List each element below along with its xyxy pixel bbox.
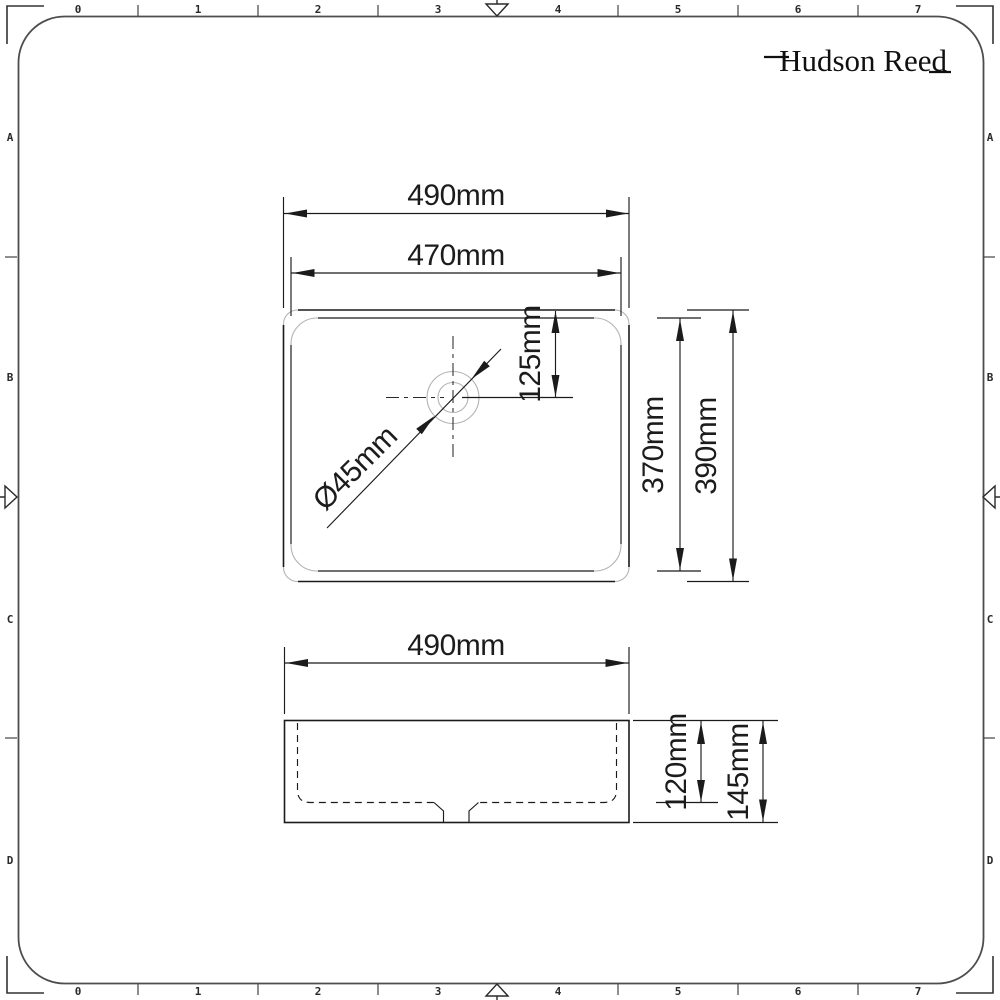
basin-front-view: 490mm 120mm 145mm [285,629,779,823]
brand-name: Hudson Reed [779,43,947,78]
ruler-label: A [7,131,14,144]
border-rounded-rect [19,17,984,984]
basin-front-outline [285,721,630,823]
hidden-bowl-contour-right [478,723,617,803]
ruler-label: B [7,371,14,384]
dim-plan-drain-diameter: Ø45mm [307,349,501,528]
ruler-label: 3 [435,3,442,16]
technical-drawing-sheet: 0 1 2 3 4 5 6 7 0 1 2 3 4 5 6 7 A B C D … [0,0,1000,1000]
dim-front-outer-height: 145mm [722,721,767,823]
dim-plan-inner-width: 470mm [291,239,621,316]
dim-front-outer-width: 490mm [285,629,630,714]
ruler-label: D [7,854,14,867]
dim-plan-drain-offset: 125mm [514,305,560,403]
ruler-label: 2 [315,985,322,998]
basin-plan-view: Ø45mm 490mm 470mm 125mm [284,179,750,582]
ruler-label: 3 [435,985,442,998]
ruler-label: A [987,131,994,144]
center-mark-right [983,486,1000,508]
dim-label-inner-height: 120mm [660,713,693,811]
drawing-canvas: 0 1 2 3 4 5 6 7 0 1 2 3 4 5 6 7 A B C D … [0,0,1000,1000]
dim-label-drain-diameter: Ø45mm [307,420,404,517]
ruler-label: 4 [555,3,562,16]
basin-outer-rim-corners [284,310,630,582]
ruler-label: 7 [915,3,922,16]
ruler-label: 4 [555,985,562,998]
ruler-label: 2 [315,3,322,16]
ruler-label: 1 [195,985,202,998]
ruler-label: 5 [675,985,682,998]
ruler-label: 0 [75,985,82,998]
drain-recess-outline [434,803,479,823]
sheet-border [7,6,993,993]
center-mark-bottom [486,984,508,1000]
ruler-label: 7 [915,985,922,998]
ruler-label: 0 [75,3,82,16]
ruler-label: C [7,613,14,626]
dim-label-plan-inner-width: 470mm [407,239,505,272]
basin-inner-bowl-corners [291,318,621,571]
dim-label-outer-depth: 390mm [690,397,723,495]
center-mark-top [486,0,508,16]
ruler-label: 1 [195,3,202,16]
dim-front-inner-height: 120mm [660,713,705,811]
dim-plan-outer-depth: 390mm [687,310,749,582]
dim-label-front-width: 490mm [407,629,505,662]
ruler-label: 5 [675,3,682,16]
corner-bracket-bottom-right [956,956,993,993]
dim-label-outer-height: 145mm [722,723,755,821]
ruler-label: C [987,613,994,626]
dim-label-plan-outer-width: 490mm [407,179,505,212]
dim-label-drain-offset: 125mm [514,305,547,403]
ruler-label: D [987,854,994,867]
brand-logo: Hudson Reed [764,43,951,78]
ruler-label: B [987,371,994,384]
dim-label-inner-depth: 370mm [637,396,670,494]
center-mark-left [0,486,17,508]
corner-bracket-top-right [956,6,993,44]
hidden-bowl-contour-left [298,723,435,803]
ruler-label: 6 [795,3,802,16]
ruler-label: 6 [795,985,802,998]
